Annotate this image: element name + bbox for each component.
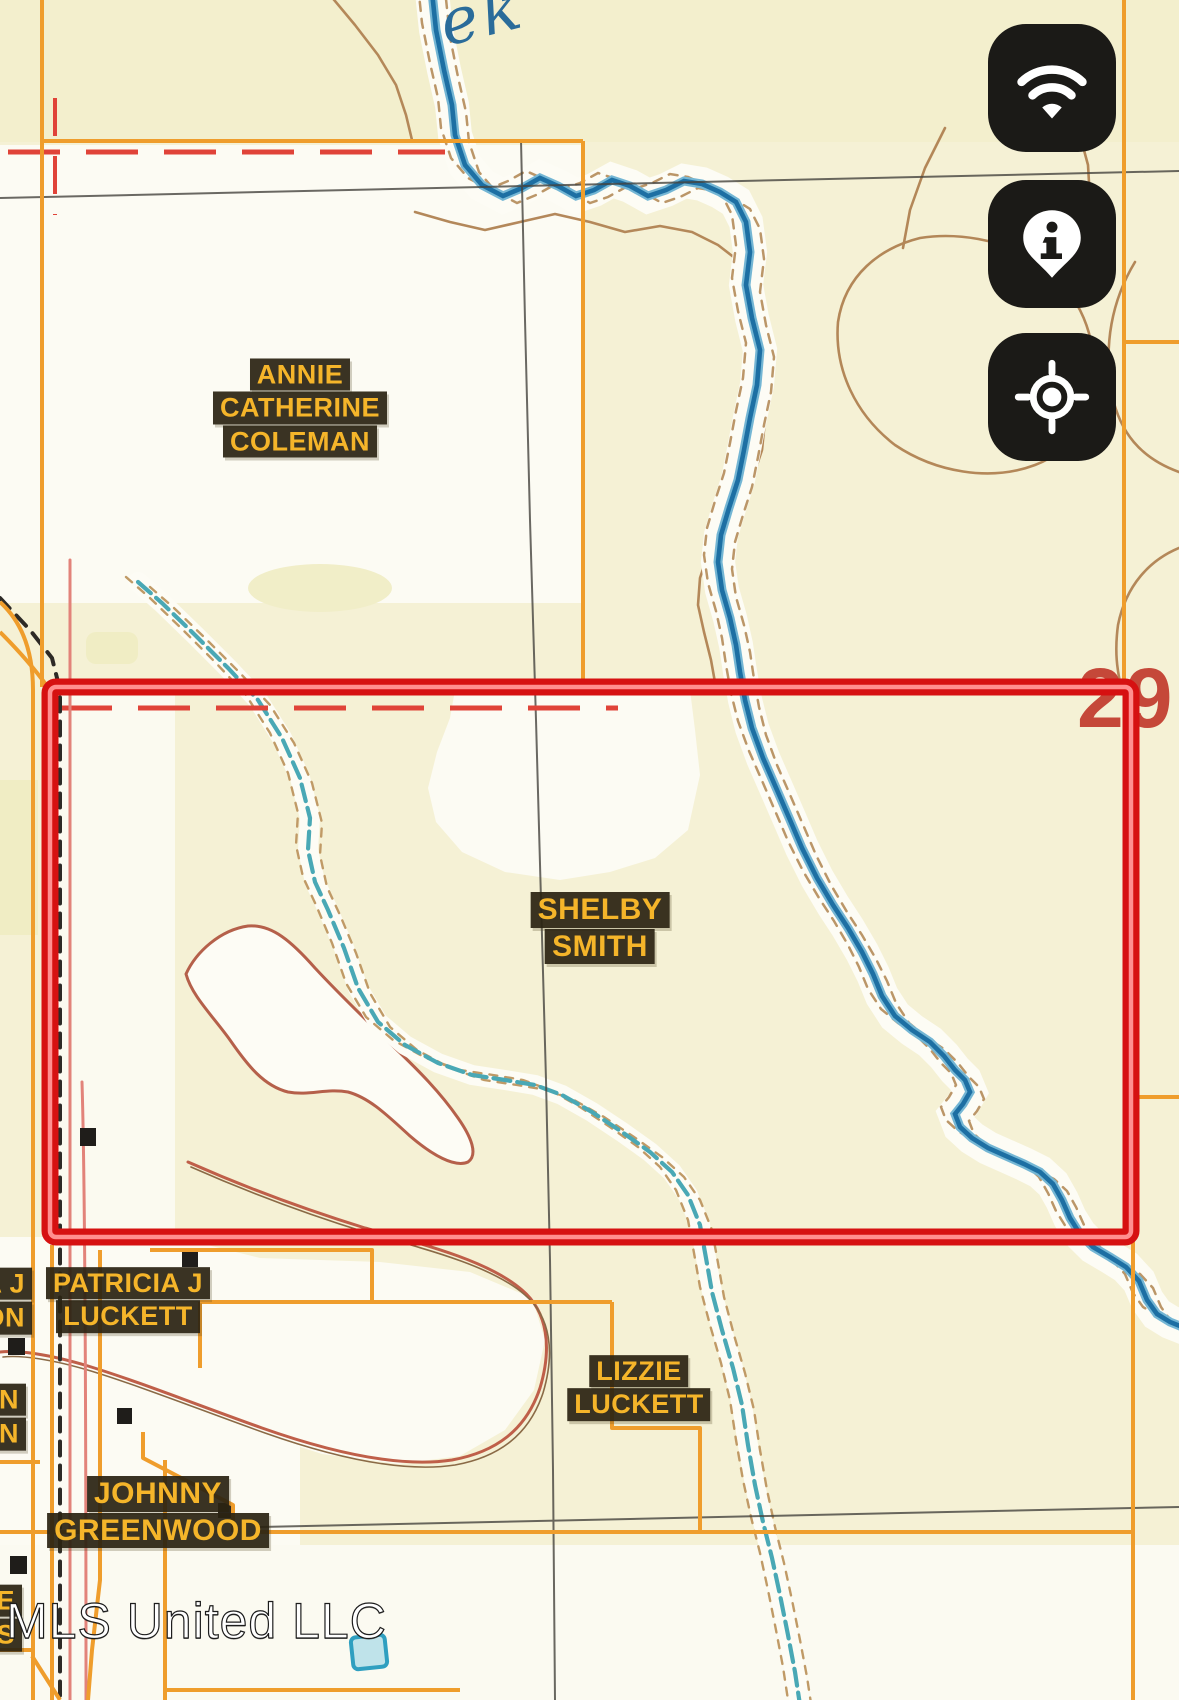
- my-location-button[interactable]: [988, 333, 1116, 461]
- layers-wifi-button[interactable]: [988, 24, 1116, 152]
- parcel-info-button[interactable]: [988, 180, 1116, 308]
- pond: [350, 1634, 387, 1669]
- wifi-icon: [1013, 49, 1091, 127]
- locate-icon: [1012, 357, 1092, 437]
- map-viewer-screen[interactable]: ek 29 ANNIE CATHERINE COLEMAN SHELBY SMI…: [0, 0, 1179, 1700]
- info-pin-icon: [1012, 204, 1092, 284]
